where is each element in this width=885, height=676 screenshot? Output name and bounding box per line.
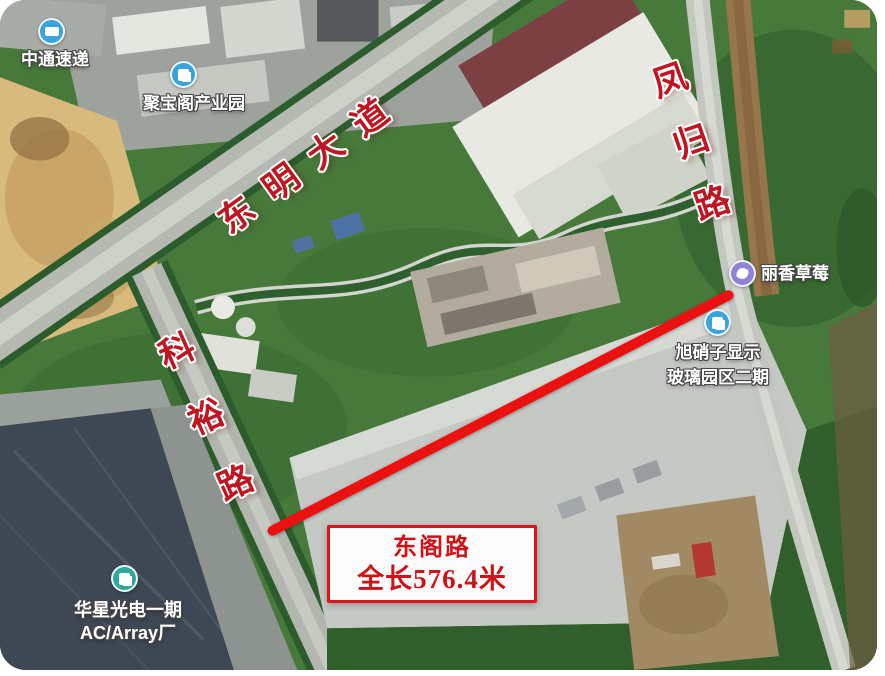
jubaoge-park-marker[interactable] <box>170 61 197 88</box>
page-background: 东明大道 凤归路 科裕路 东阁路 全长576.4米 中通速递 聚宝阁产业园 旭硝… <box>0 0 885 676</box>
lixiang-strawberry-marker[interactable] <box>729 260 756 287</box>
zhongtong-express-marker[interactable] <box>38 18 65 45</box>
huaxing-optoelectronics-label: 华星光电一期 AC/Array厂 <box>38 599 218 645</box>
callout-road-name: 东阁路 <box>393 533 471 563</box>
callout-road-length: 全长576.4米 <box>357 563 507 595</box>
zhongtong-express-label: 中通速递 <box>5 48 105 72</box>
strawberry-icon <box>735 266 749 280</box>
xuxiaozi-label-line2: 玻璃园区二期 <box>628 365 808 390</box>
xuxiaozi-glass-park-label: 旭硝子显示 玻璃园区二期 <box>628 340 808 390</box>
lixiang-strawberry-label: 丽香草莓 <box>761 262 829 286</box>
building-icon <box>712 317 723 329</box>
building-icon <box>178 69 189 81</box>
map-canvas[interactable]: 东明大道 凤归路 科裕路 东阁路 全长576.4米 中通速递 聚宝阁产业园 旭硝… <box>0 0 877 670</box>
xuxiaozi-label-line1: 旭硝子显示 <box>628 340 808 365</box>
huaxing-label-line1: 华星光电一期 <box>38 599 218 622</box>
road-info-callout: 东阁路 全长576.4米 <box>327 525 537 603</box>
truck-icon <box>45 27 59 36</box>
building-icon <box>119 573 130 585</box>
huaxing-label-line2: AC/Array厂 <box>38 622 218 645</box>
huaxing-optoelectronics-marker[interactable] <box>111 565 138 592</box>
jubaoge-park-label: 聚宝阁产业园 <box>134 92 254 116</box>
xuxiaozi-glass-park-marker[interactable] <box>704 309 731 336</box>
